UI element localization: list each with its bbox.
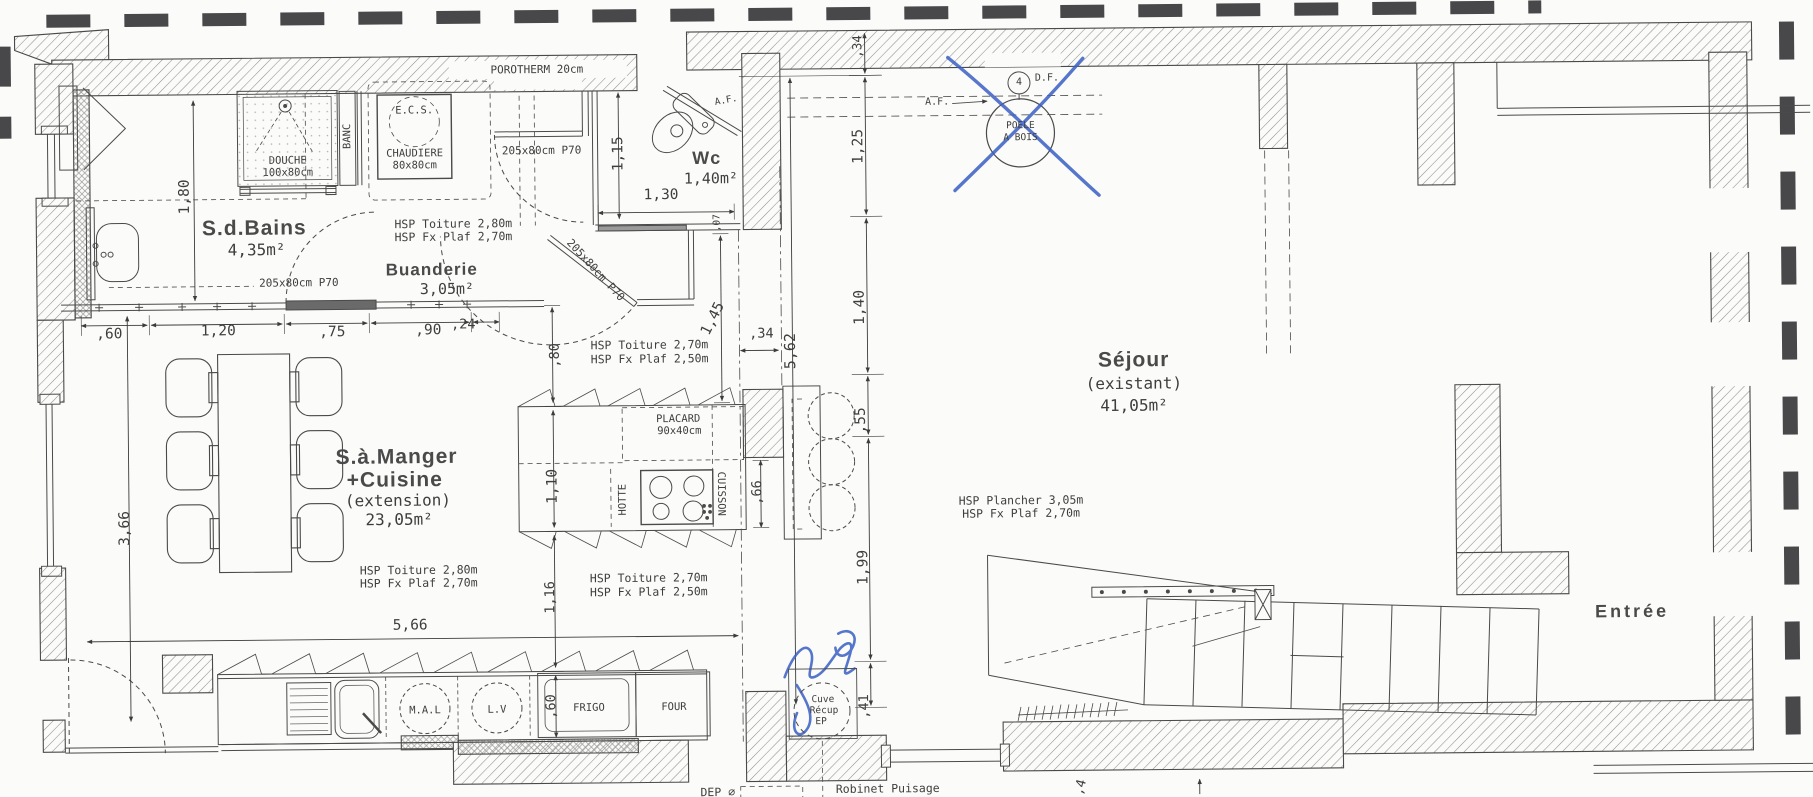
room-sdbains-title: S.d.Bains	[202, 217, 307, 239]
fixture-placard: PLACARD	[656, 414, 700, 425]
floor-plan-page: S.d.Bains4,35m²Buanderie3,05m²Wc1,40m²S.…	[0, 0, 1813, 797]
wall-porotherm: POROTHERM 20cm	[486, 63, 587, 77]
hsp-buanderie-2: HSP Fx Plaf 2,70m	[395, 231, 513, 244]
dim-1-99: 1,99	[856, 550, 871, 585]
fixture-douche-size: 100x80cm	[262, 167, 313, 178]
dim-0-24: ,24	[451, 318, 476, 332]
dim-0-55: ,55	[854, 407, 869, 433]
fixture-cuisson: CUISSON	[715, 472, 726, 516]
dim-5-66: 5,66	[393, 618, 428, 633]
room-sam-ext: (extension)	[345, 492, 451, 509]
window-af-wc: A.F.	[714, 94, 738, 108]
room-sam-line1: S.à.Manger	[335, 446, 457, 468]
door-buanderie-diag-label: 205x80cm P70	[565, 237, 627, 303]
appliance-four: FOUR	[661, 702, 686, 713]
fixture-hotte: HOTTE	[618, 484, 629, 516]
fixture-chaudiere-size: 80x80cm	[393, 160, 437, 171]
dim-1-45: 1,45	[699, 300, 728, 338]
note-robinet: Robinet Puisage	[836, 783, 940, 795]
dim-1-40: 1,40	[853, 290, 868, 325]
hsp-kitchen-north-2: HSP Fx Plaf 2,50m	[591, 353, 709, 366]
dim-0-66: ,66	[751, 480, 765, 505]
cuve-line3: EP	[815, 717, 827, 727]
dim-1-10: 1,10	[545, 469, 560, 504]
room-sejour-sub: (existant)	[1086, 375, 1182, 392]
dim-0-41: ,41	[858, 694, 872, 719]
door-bath-label: 205x80cm P70	[259, 277, 339, 289]
cuve-line1: Cuve	[811, 695, 834, 705]
hsp-kitchen-south-2: HSP Fx Plaf 2,50m	[590, 586, 708, 599]
poele-line1: POELE	[1006, 121, 1035, 131]
appliance-mal: M.A.L	[409, 705, 441, 716]
room-buanderie-title: Buanderie	[386, 261, 478, 279]
hsp-sam-2: HSP Fx Plaf 2,70m	[360, 577, 478, 590]
dim-0-34-b: ,34	[851, 35, 864, 58]
floor-plan: S.d.Bains4,35m²Buanderie3,05m²Wc1,40m²S.…	[0, 0, 1813, 797]
room-sdbains-area: 4,35m²	[228, 242, 286, 259]
fixture-ecs: E.C.S.	[395, 105, 433, 116]
hsp-kitchen-north-1: HSP Toiture 2,70m	[591, 339, 709, 352]
dim-0-07: ,07	[712, 214, 722, 231]
cuve-line2: Récup	[810, 706, 839, 716]
dim-1-25: 1,25	[851, 129, 866, 164]
dim-0-60-a: ,60	[96, 327, 122, 342]
dim-1-80: 1,80	[178, 179, 193, 214]
fixture-placard-size: 90x40cm	[657, 426, 701, 437]
window-af-sejour: A.F.	[925, 98, 949, 108]
dim-0-60-b: ,60	[545, 694, 559, 719]
fixture-chaudiere: CHAUDIERE	[386, 148, 443, 159]
room-sejour-title: Séjour	[1098, 349, 1170, 371]
dim-0-75: ,75	[319, 325, 345, 340]
room-entree-title: Entrée	[1595, 602, 1669, 621]
dim-3-66: 3,66	[118, 511, 133, 546]
room-wc-area: 1,40m²	[684, 171, 738, 187]
dim-0-34-a: ,34	[749, 328, 774, 342]
appliance-lv: L.V	[487, 705, 506, 716]
dim-1-20: 1,20	[201, 324, 236, 339]
dim-0-80: ,80	[549, 343, 563, 368]
dim-1-16: 1,16	[544, 581, 558, 614]
dim-1-15: 1,15	[611, 136, 626, 171]
vent-df: D.F.	[1035, 74, 1059, 84]
note-dep: DEP ⌀	[700, 787, 735, 797]
room-buanderie-area: 3,05m²	[420, 282, 474, 298]
fixture-banc: BANC	[342, 124, 353, 149]
fixture-douche: DOUCHE	[269, 155, 307, 166]
dim-5-62: 5,62	[783, 333, 798, 369]
room-sam-area: 23,05m²	[365, 512, 433, 529]
plan-labels: S.d.Bains4,35m²Buanderie3,05m²Wc1,40m²S.…	[0, 0, 1813, 797]
room-sejour-area: 41,05m²	[1100, 397, 1168, 414]
hsp-kitchen-south-1: HSP Toiture 2,70m	[590, 572, 708, 585]
dim-0-4-partial: ,4	[1072, 778, 1088, 796]
room-sam-line2: +Cuisine	[347, 469, 443, 491]
dim-1-30: 1,30	[644, 188, 679, 203]
door-buanderie-top-label: 205x80cm P70	[502, 145, 582, 157]
hsp-sejour-2: HSP Fx Plaf 2,70m	[962, 508, 1080, 521]
room-wc-title: Wc	[692, 149, 721, 167]
appliance-frigo: FRIGO	[573, 703, 605, 714]
vent-df-num: 4	[1016, 78, 1022, 88]
dim-0-90: ,90	[415, 323, 441, 338]
poele-line2: A BOIS	[1003, 133, 1037, 143]
